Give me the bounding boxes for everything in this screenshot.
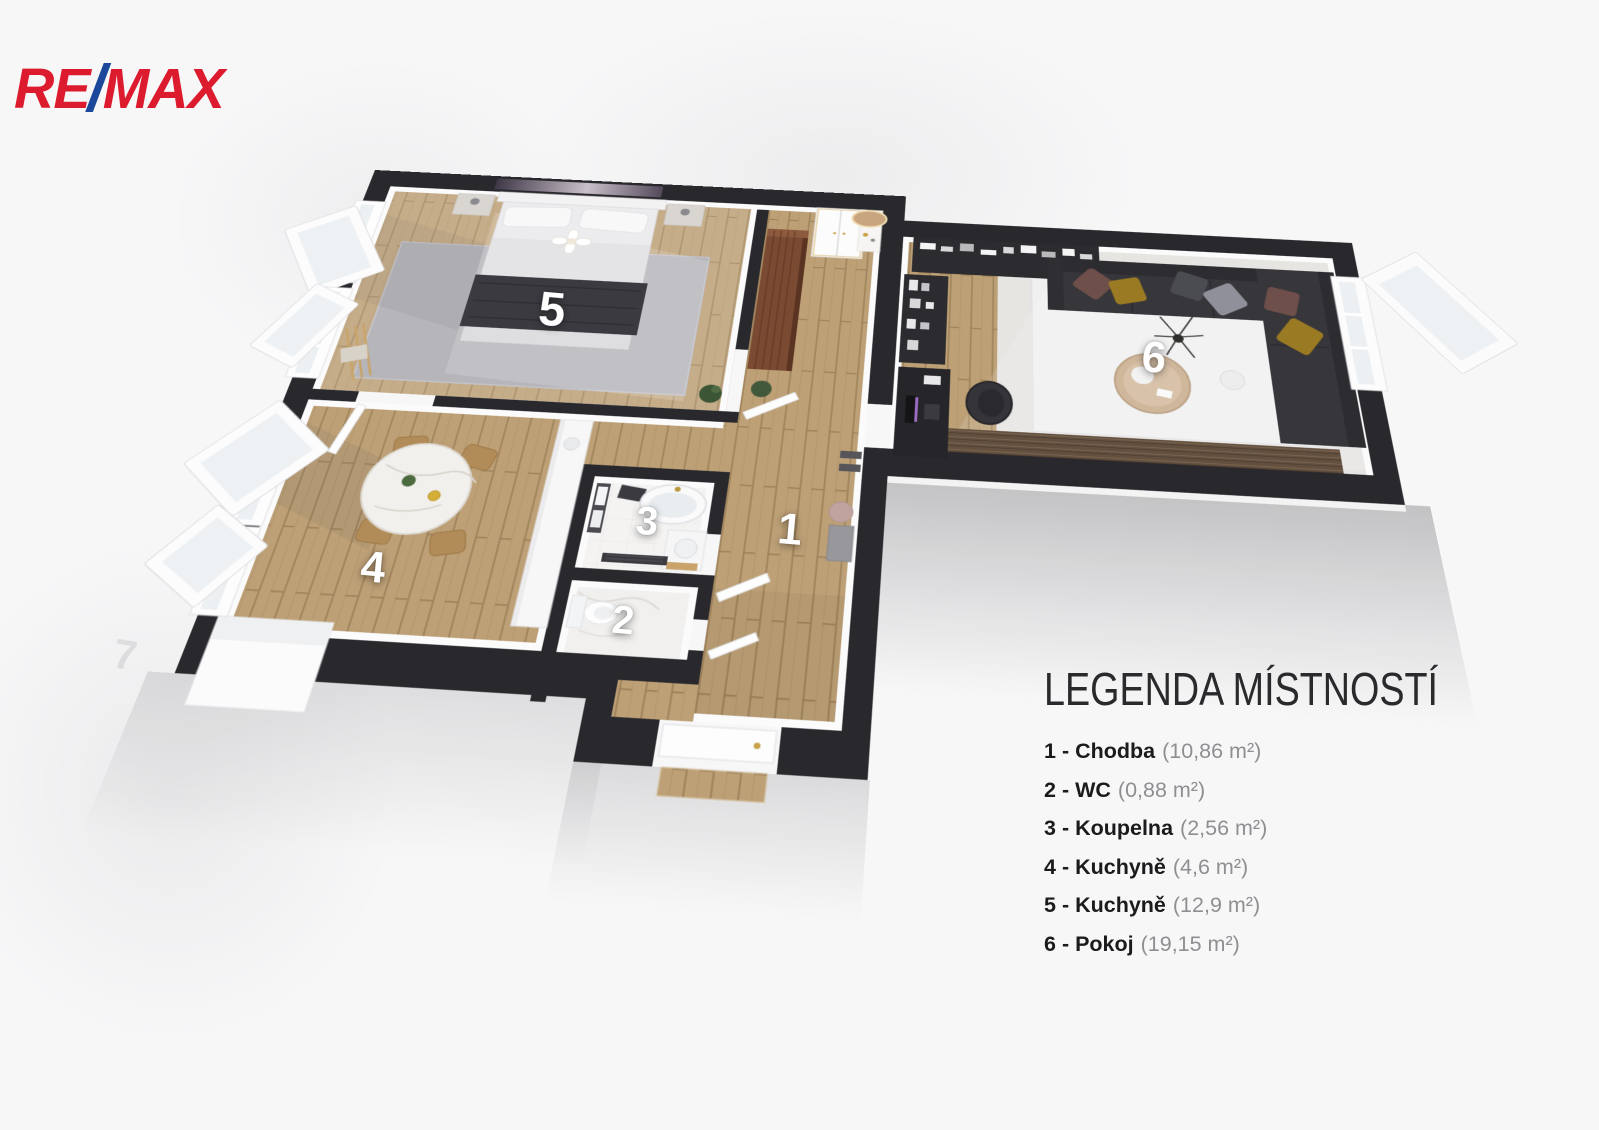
room-number-3: 3 [634, 499, 660, 546]
room-number-4: 4 [359, 542, 388, 594]
pillow [502, 207, 573, 228]
room-number-1: 1 [776, 504, 805, 556]
stage: 1 2 3 4 5 6 7 RE/MAX LEGENDA MÍSTNOSTÍ 1… [0, 0, 1599, 1130]
legend-item: 1 - Chodba(10,86 m²) [1044, 732, 1524, 771]
room-number-2: 2 [610, 598, 636, 645]
legend-title: LEGENDA MÍSTNOSTÍ [1044, 662, 1438, 716]
dining-chair [429, 529, 465, 556]
room-number-5: 5 [536, 281, 567, 338]
remax-logo: RE/MAX [14, 52, 224, 118]
legend-item: 4 - Kuchyně(4,6 m²) [1044, 848, 1524, 887]
legend-item: 5 - Kuchyně(12,9 m²) [1044, 886, 1524, 925]
legend-item: 6 - Pokoj(19,15 m²) [1044, 925, 1524, 964]
logo-re: RE [14, 57, 90, 121]
legend-item: 3 - Koupelna(2,56 m²) [1044, 809, 1524, 848]
room-number-6: 6 [1140, 332, 1169, 384]
hall-bench [826, 525, 853, 562]
shoe-shelf [840, 451, 862, 459]
desk [893, 367, 951, 459]
room-legend: LEGENDA MÍSTNOSTÍ 1 - Chodba(10,86 m²) 2… [1044, 662, 1524, 964]
logo-slash: / [88, 51, 105, 125]
logo-max: MAX [103, 57, 224, 121]
legend-items: 1 - Chodba(10,86 m²) 2 - WC(0,88 m²) 3 -… [1044, 732, 1524, 964]
shoe-shelf [839, 464, 861, 473]
legend-item: 2 - WC(0,88 m²) [1044, 771, 1524, 810]
entrance-threshold [657, 767, 768, 803]
keyboard [924, 404, 940, 420]
monitor [905, 395, 916, 423]
faint-digit-7: 7 [110, 629, 141, 680]
floorplan-page: { "brand": { "logo_re": "RE", "logo_slas… [0, 0, 1599, 1130]
